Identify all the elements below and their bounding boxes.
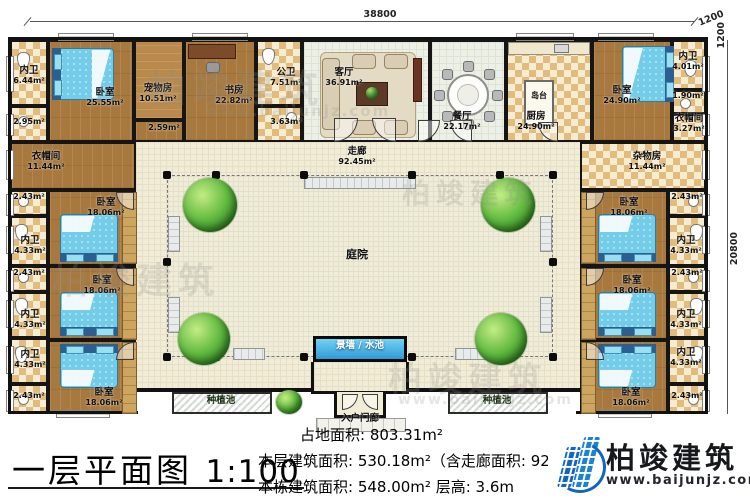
room-label: 2.43m²	[671, 392, 703, 401]
room-label: 衣帽间3.27m²	[673, 114, 705, 134]
room-label: 卧室18.06m²	[610, 198, 647, 218]
room-入户门廊	[311, 362, 409, 394]
plant-icon	[366, 87, 378, 99]
pillow	[96, 346, 114, 354]
column	[549, 171, 557, 179]
dimension-top-label: 38800	[363, 9, 396, 20]
bench	[540, 216, 552, 252]
bench	[233, 348, 265, 360]
desk-chair	[206, 62, 220, 73]
room-label: 卧室18.06m²	[613, 276, 650, 296]
room-label: 2.43m²	[671, 269, 703, 278]
room-label: 卧室24.90m²	[603, 86, 640, 106]
column	[549, 353, 557, 361]
palm-icon	[276, 390, 302, 414]
drawing-title: 一层平面图 1:100	[12, 444, 300, 492]
room-label: 种植池	[483, 396, 512, 407]
chair	[492, 90, 503, 101]
chair	[484, 69, 495, 80]
tree-icon	[183, 178, 237, 232]
pillow	[604, 346, 622, 354]
column	[163, 353, 171, 361]
tv-cabinet	[413, 58, 422, 102]
pillow	[54, 80, 62, 96]
bed-sheet	[600, 216, 654, 232]
room-label: 景墙 / 水池	[336, 341, 384, 352]
dimension-right-label: 20800	[729, 232, 740, 265]
outer-wall-bottom	[8, 411, 138, 414]
room-label: 衣帽间11.44m²	[27, 152, 64, 172]
desk	[188, 44, 236, 59]
pillow	[66, 328, 84, 336]
column	[300, 171, 308, 179]
pillow	[54, 54, 62, 70]
dimension-corner-label-vertical: 1200	[716, 22, 727, 48]
pillow	[66, 346, 84, 354]
tree-icon	[481, 178, 535, 232]
room-label: 客厅36.91m²	[325, 68, 362, 88]
logo-building-icon	[556, 435, 604, 491]
room-label: 内卫4.33m²	[670, 310, 702, 330]
tree-icon	[475, 313, 527, 365]
room-label: 种植池	[207, 396, 236, 407]
room-label: 卧室18.06m²	[87, 198, 124, 218]
room-label: 餐厅22.17m²	[443, 112, 480, 132]
kitchen-counter	[508, 42, 590, 55]
room-label: 内卫4.01m²	[672, 52, 704, 72]
floor-plan-sheet: 内卫6.44m²2.95m²卧室25.55m²宠物房10.51m²2.59m²书…	[0, 0, 750, 504]
room-label: 内卫4.33m²	[670, 348, 702, 368]
column	[163, 258, 171, 266]
room-label: 内卫4.33m²	[14, 236, 46, 256]
room-label: 2.43m²	[13, 193, 45, 202]
bed-sheet	[62, 370, 116, 386]
room-label: 厨房24.90m²	[517, 112, 554, 132]
room-label: 2.59m²	[148, 124, 180, 133]
bench	[540, 297, 552, 333]
room-label: 卧室18.06m²	[83, 276, 120, 296]
room-label: 岛台	[531, 92, 547, 101]
room-label: 卧室18.06m²	[612, 388, 649, 408]
dimension-line-right	[727, 40, 728, 414]
room-label: 2.43m²	[13, 269, 45, 278]
bed-sheet	[600, 370, 654, 386]
kitchen-sink	[554, 44, 569, 53]
column	[300, 353, 308, 361]
room-label: 2.43m²	[671, 193, 703, 202]
pillow	[96, 328, 114, 336]
pillow	[634, 254, 652, 262]
pillow	[604, 328, 622, 336]
column	[549, 258, 557, 266]
room-label: 内卫4.33m²	[670, 236, 702, 256]
room-label: 内卫4.33m²	[14, 350, 46, 370]
room-label: 宠物房10.51m²	[139, 84, 176, 104]
bench	[168, 216, 180, 252]
room-label: 2.43m²	[13, 392, 45, 401]
pillow	[604, 254, 622, 262]
bed-sheet	[600, 294, 654, 310]
dining-table-center	[457, 84, 479, 106]
chair	[484, 111, 495, 122]
logo-company-name: 柏竣建筑	[606, 435, 738, 477]
room-label: 1.90m²	[672, 92, 704, 101]
armchair	[384, 54, 408, 69]
room-label: 内卫6.44m²	[13, 66, 45, 86]
tree-icon	[178, 313, 230, 365]
room-label: 庭院	[346, 249, 368, 261]
room-label: 内卫4.33m²	[14, 310, 46, 330]
column	[163, 171, 171, 179]
bed-sheet	[62, 294, 116, 310]
stat-land-area: 占地面积: 803.31m²	[300, 424, 443, 445]
column	[408, 353, 416, 361]
room-label: 卧室18.06m²	[85, 388, 122, 408]
logo-website: www.baijunjz.com	[606, 473, 750, 488]
column	[408, 171, 416, 179]
chair	[434, 90, 445, 101]
room-label: 书房22.82m²	[215, 86, 252, 106]
stat-building-area: 本栋建筑面积: 548.00m² 层高: 3.6m	[258, 476, 514, 497]
dimension-line-top	[30, 21, 694, 22]
pillow	[634, 328, 652, 336]
bed-sheet	[62, 216, 116, 232]
room-label: 2.95m²	[13, 118, 45, 127]
armchair	[352, 54, 376, 69]
room-label: 走廊92.45m²	[338, 147, 375, 167]
pillow	[96, 254, 114, 262]
bench	[168, 297, 180, 333]
pillow	[66, 254, 84, 262]
room-label: 3.63m²	[270, 118, 302, 127]
company-logo: 柏竣建筑 www.baijunjz.com	[548, 431, 750, 501]
drawing-title-text: 一层平面图	[12, 451, 192, 490]
room-label: 公卫7.51m²	[270, 68, 302, 88]
chair	[442, 69, 453, 80]
room-label: 卧室25.55m²	[86, 88, 123, 108]
pillow	[634, 346, 652, 354]
chair	[463, 61, 474, 72]
room-label: 杂物房11.44m²	[628, 152, 665, 172]
bench	[304, 177, 416, 189]
